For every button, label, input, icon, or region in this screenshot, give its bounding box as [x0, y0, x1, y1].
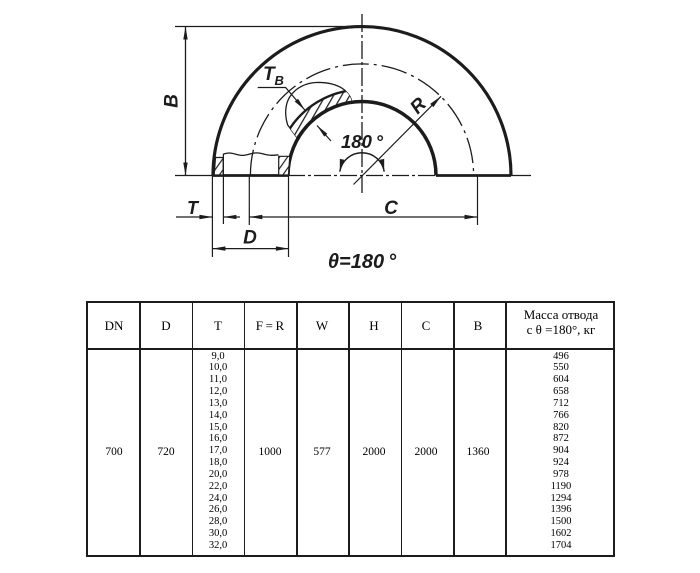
svg-text:T: T — [187, 198, 200, 218]
svg-text:R: R — [406, 94, 431, 119]
svg-text:B: B — [162, 94, 183, 108]
svg-text:D: D — [243, 228, 257, 249]
svg-text:θ=180 °: θ=180 ° — [328, 251, 397, 273]
svg-text:180 °: 180 ° — [341, 131, 384, 152]
svg-text:B: B — [275, 73, 284, 88]
svg-text:C: C — [384, 198, 398, 219]
